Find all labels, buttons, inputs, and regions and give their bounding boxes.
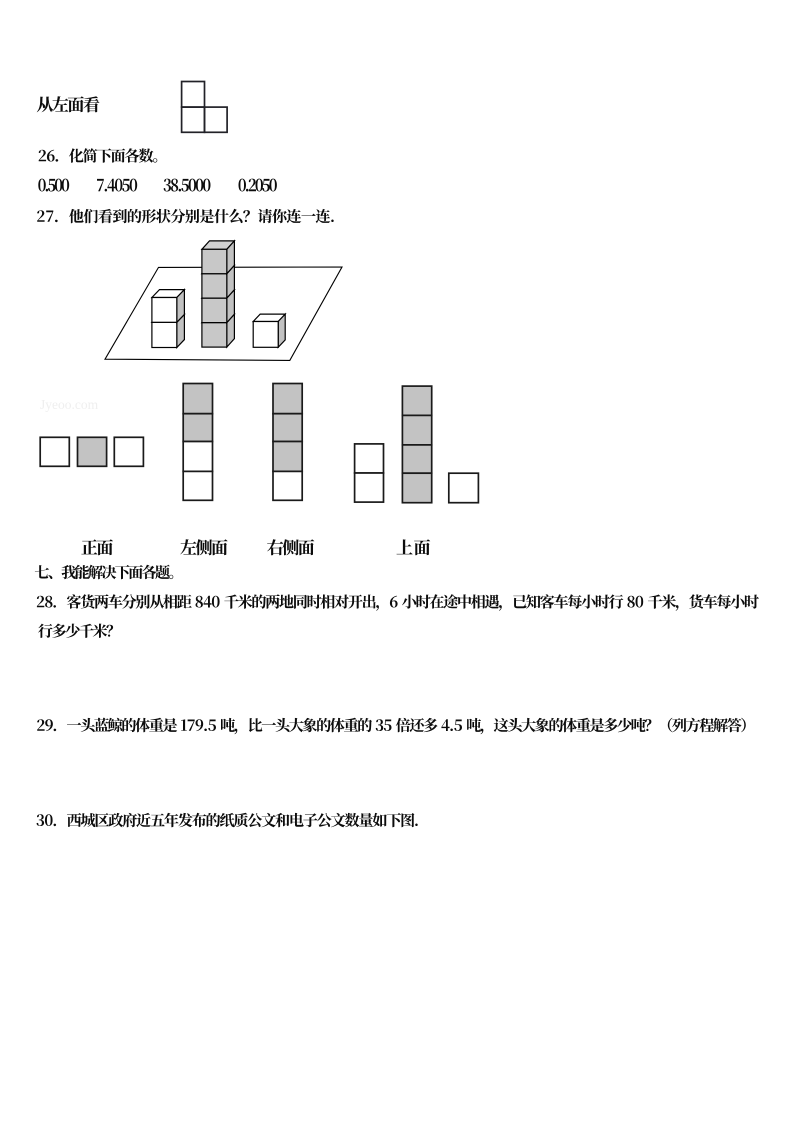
svg-text:Jyeoo.com: Jyeoo.com (40, 397, 99, 412)
